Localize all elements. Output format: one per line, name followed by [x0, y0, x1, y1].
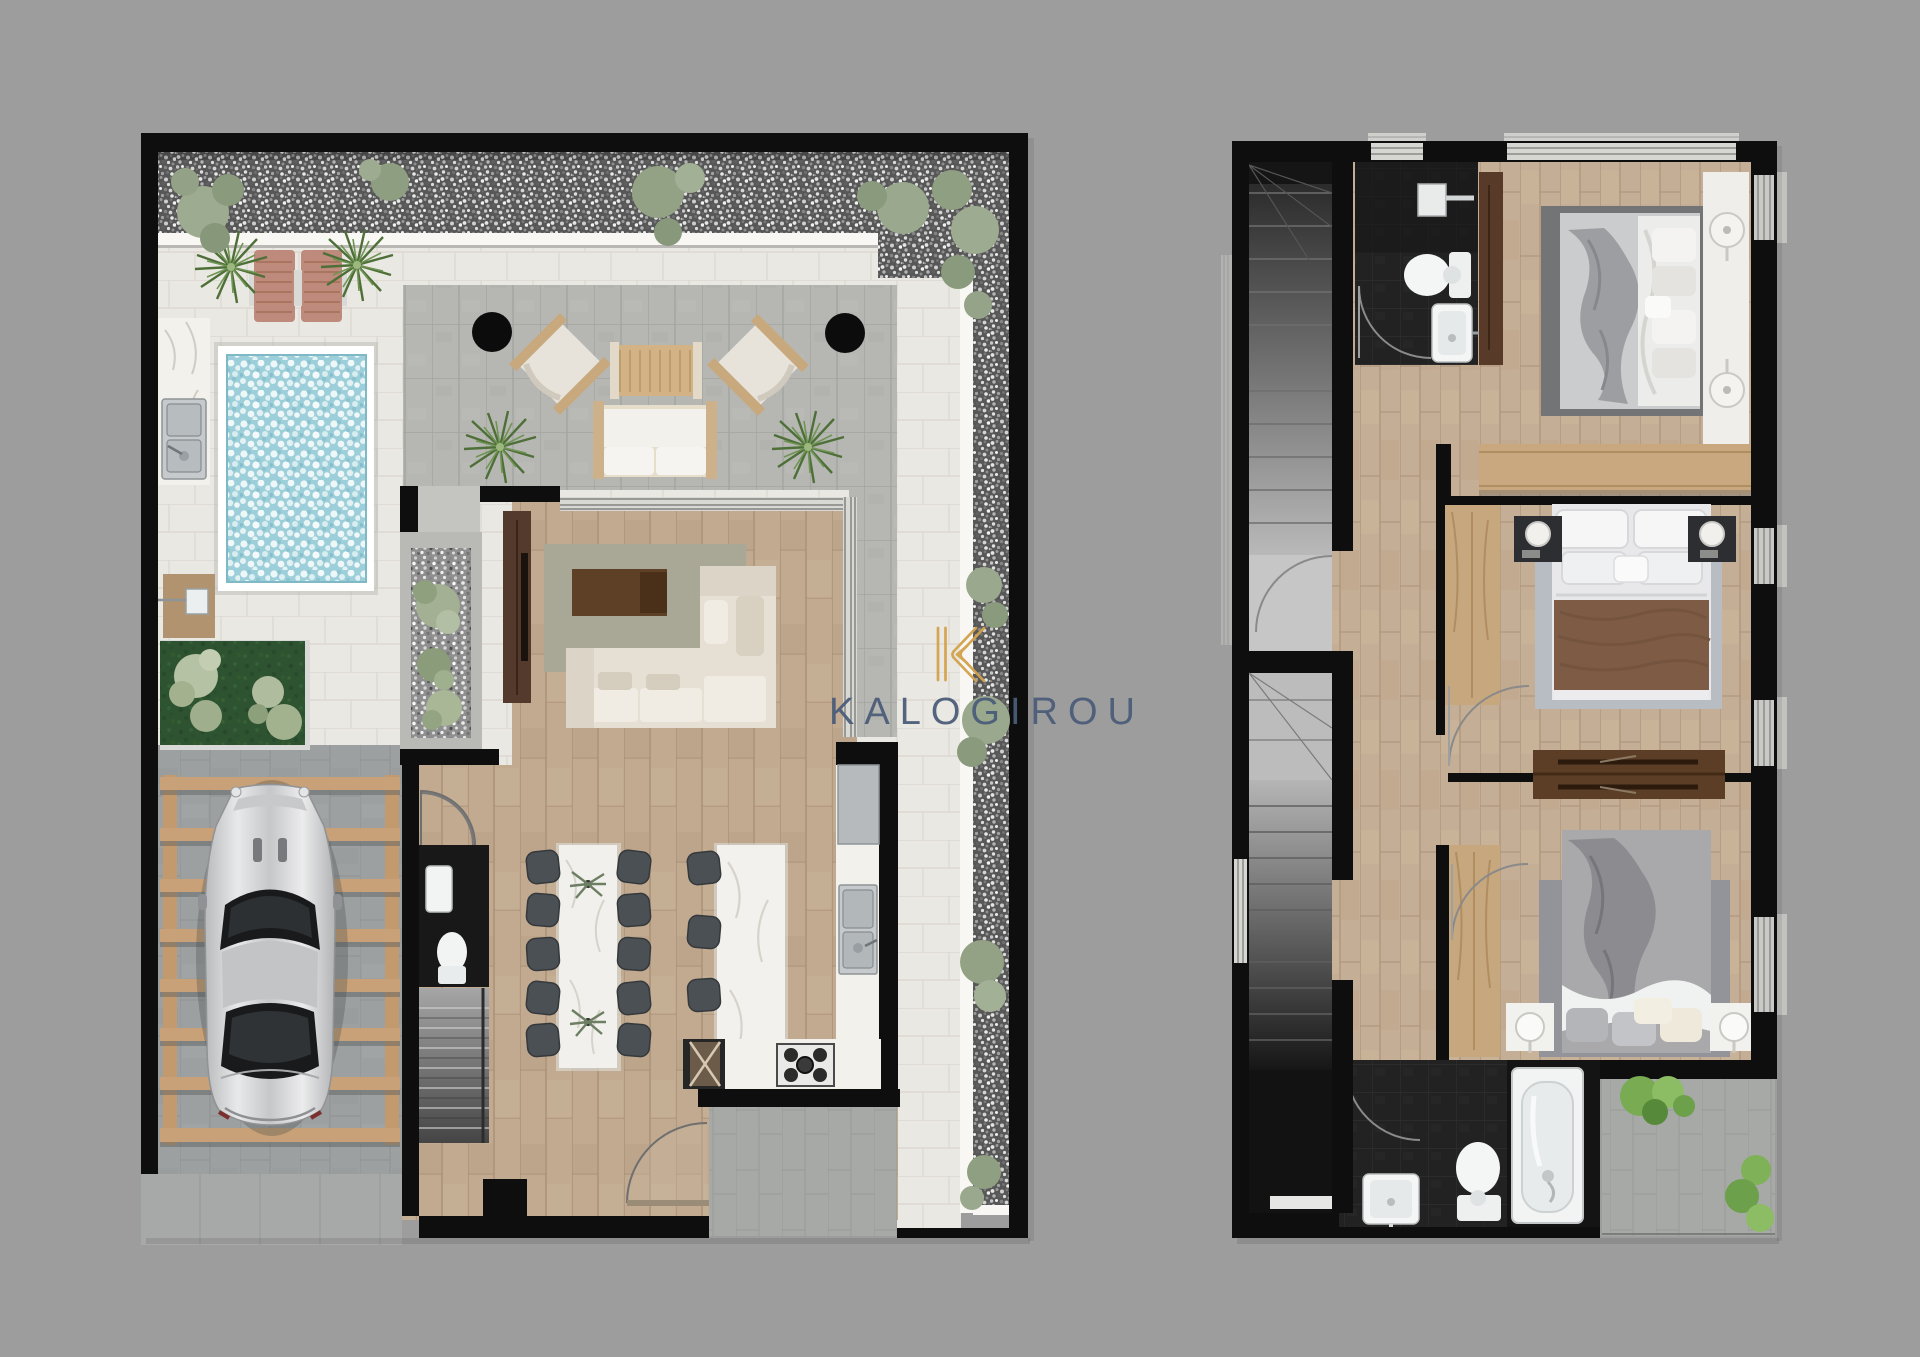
svg-text:KALOGIROU: KALOGIROU — [829, 691, 1145, 733]
